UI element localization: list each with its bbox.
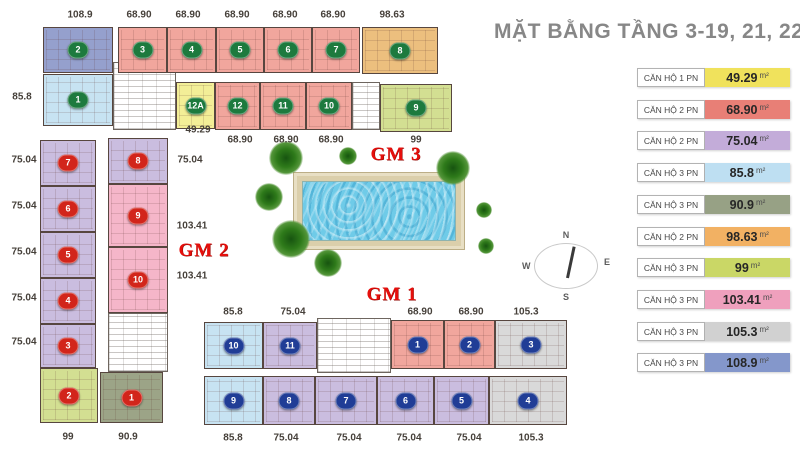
legend-area-value: 99m² xyxy=(705,258,790,277)
legend-area-number: 105.3 xyxy=(726,325,757,339)
legend-area-unit: m² xyxy=(759,325,768,334)
unit-4: 4 xyxy=(167,27,216,73)
legend-area-value: 90.9m² xyxy=(705,195,790,214)
legend-area-number: 90.9 xyxy=(730,198,754,212)
legend-area-number: 99 xyxy=(735,261,749,275)
area-label: 68.90 xyxy=(272,10,297,21)
area-label: 75.04 xyxy=(280,307,305,318)
area-label: 75.04 xyxy=(11,337,36,348)
legend-area-unit: m² xyxy=(763,293,772,302)
tree-icon xyxy=(476,202,492,218)
unit-number-badge: 9 xyxy=(128,207,149,224)
unit-8: 8 xyxy=(108,138,168,184)
unit-number-badge: 7 xyxy=(58,155,79,172)
unit-number-badge: 6 xyxy=(395,392,416,409)
unit-number-badge: 8 xyxy=(279,392,300,409)
unit-8: 8 xyxy=(263,376,315,425)
pool-water xyxy=(302,181,456,241)
unit-number-badge: 9 xyxy=(223,392,244,409)
area-label: 75.04 xyxy=(456,433,481,444)
legend-area-number: 49.29 xyxy=(726,71,757,85)
area-label: 108.9 xyxy=(67,10,92,21)
area-label: 68.90 xyxy=(175,10,200,21)
unit-number-badge: 4 xyxy=(58,293,79,310)
area-label: 68.90 xyxy=(227,135,252,146)
unit-11: 11 xyxy=(263,322,317,369)
legend-area-unit: m² xyxy=(759,134,768,143)
unit-number-badge: 8 xyxy=(128,153,149,170)
legend-row: CĂN HỘ 2 PN75.04m² xyxy=(637,131,790,150)
unit-number-badge: 12A xyxy=(185,97,206,114)
unit-7: 7 xyxy=(315,376,377,425)
legend-type-label: CĂN HỘ 2 PN xyxy=(637,100,705,119)
unit-number-badge: 7 xyxy=(326,42,347,59)
legend-row: CĂN HỘ 3 PN90.9m² xyxy=(637,195,790,214)
legend-row: CĂN HỘ 3 PN105.3m² xyxy=(637,322,790,341)
tree-icon xyxy=(436,151,470,185)
unit-6: 6 xyxy=(264,27,312,73)
legend-row: CĂN HỘ 3 PN103.41m² xyxy=(637,290,790,309)
unit-number-badge: 10 xyxy=(319,98,340,115)
area-label: 68.90 xyxy=(320,10,345,21)
unit-number-badge: 5 xyxy=(451,392,472,409)
unit-3: 3 xyxy=(40,324,96,368)
unit-number-badge: 3 xyxy=(132,42,153,59)
legend-type-label: CĂN HỘ 1 PN xyxy=(637,68,705,87)
area-label: 98.63 xyxy=(379,10,404,21)
area-label: 90.9 xyxy=(118,432,137,443)
legend-row: CĂN HỘ 3 PN85.8m² xyxy=(637,163,790,182)
area-label: 68.90 xyxy=(318,135,343,146)
unit-number-badge: 5 xyxy=(58,247,79,264)
unit-12: 12 xyxy=(215,82,260,130)
area-label: 75.04 xyxy=(11,201,36,212)
unit-10: 10 xyxy=(204,322,263,369)
legend-area-unit: m² xyxy=(759,103,768,112)
area-label: 103.41 xyxy=(177,271,208,282)
area-label: 105.3 xyxy=(513,307,538,318)
legend-area-unit: m² xyxy=(751,261,760,270)
legend-area-unit: m² xyxy=(759,71,768,80)
unit-9: 9 xyxy=(380,84,452,132)
unit-6: 6 xyxy=(377,376,434,425)
unit-number-badge: 6 xyxy=(278,42,299,59)
legend-area-value: 98.63m² xyxy=(705,227,790,246)
unit-number-badge: 1 xyxy=(68,92,89,109)
area-label: 68.90 xyxy=(273,135,298,146)
area-label: 68.90 xyxy=(224,10,249,21)
unit-number-badge: 4 xyxy=(181,42,202,59)
legend-type-label: CĂN HỘ 3 PN xyxy=(637,290,705,309)
unit-number-badge: 3 xyxy=(58,338,79,355)
legend-area-number: 68.90 xyxy=(726,103,757,117)
unit-number-badge: 11 xyxy=(280,337,301,354)
unit-5: 5 xyxy=(40,232,96,278)
area-label: 68.90 xyxy=(458,307,483,318)
area-label: 75.04 xyxy=(11,247,36,258)
legend-area-number: 98.63 xyxy=(726,230,757,244)
unit-number-badge: 3 xyxy=(521,336,542,353)
unit-8: 8 xyxy=(362,27,438,74)
unit-number-badge: 10 xyxy=(128,272,149,289)
legend-area-number: 103.41 xyxy=(723,293,761,307)
legend-type-label: CĂN HỘ 3 PN xyxy=(637,195,705,214)
unit-number-badge: 2 xyxy=(68,42,89,59)
page-title: MẶT BẰNG TẦNG 3-19, 21, 22 xyxy=(494,20,800,44)
unit-number-badge: 7 xyxy=(336,392,357,409)
legend-area-value: 75.04m² xyxy=(705,131,790,150)
area-label: 99 xyxy=(62,432,73,443)
area-label: 68.90 xyxy=(126,10,151,21)
tree-icon xyxy=(272,220,310,258)
unit-7: 7 xyxy=(312,27,360,73)
area-label: 103.41 xyxy=(177,221,208,232)
legend-row: CĂN HỘ 2 PN68.90m² xyxy=(637,100,790,119)
legend-row: CĂN HỘ 2 PN98.63m² xyxy=(637,227,790,246)
legend-row: CĂN HỘ 3 PN108.9m² xyxy=(637,353,790,372)
unit-2: 2 xyxy=(40,368,98,423)
stair-core xyxy=(108,313,168,372)
floorplan-canvas: MẶT BẰNG TẦNG 3-19, 21, 22 2345678112A12… xyxy=(0,0,800,456)
unit-number-badge: 6 xyxy=(58,201,79,218)
tree-icon xyxy=(339,147,357,165)
unit-3: 3 xyxy=(118,27,167,73)
unit-10: 10 xyxy=(108,247,168,313)
legend-area-unit: m² xyxy=(759,356,768,365)
tree-icon xyxy=(478,238,494,254)
legend-area-unit: m² xyxy=(756,198,765,207)
swimming-pool xyxy=(293,172,465,250)
unit-4: 4 xyxy=(489,376,567,425)
legend-area-number: 75.04 xyxy=(726,134,757,148)
compass-west: W xyxy=(522,261,531,271)
legend-type-label: CĂN HỘ 3 PN xyxy=(637,322,705,341)
unit-2: 2 xyxy=(444,320,495,369)
unit-number-badge: 2 xyxy=(459,336,480,353)
area-label: 105.3 xyxy=(518,433,543,444)
block-label: GM 2 xyxy=(179,240,230,262)
unit-5: 5 xyxy=(216,27,264,73)
unit-number-badge: 8 xyxy=(390,42,411,59)
unit-4: 4 xyxy=(40,278,96,324)
compass-east: E xyxy=(604,257,610,267)
compass-north: N xyxy=(563,230,570,240)
legend-area-number: 108.9 xyxy=(726,356,757,370)
legend-type-label: CĂN HỘ 3 PN xyxy=(637,163,705,182)
compass-south: S xyxy=(563,292,569,302)
unit-number-badge: 12 xyxy=(227,98,248,115)
unit-number-badge: 9 xyxy=(406,100,427,117)
unit-1: 1 xyxy=(100,372,163,423)
unit-number-badge: 2 xyxy=(59,387,80,404)
block-label: GM 1 xyxy=(367,284,418,306)
legend-area-value: 105.3m² xyxy=(705,322,790,341)
unit-12A: 12A xyxy=(176,82,215,129)
area-label: 85.8 xyxy=(12,92,31,103)
area-label: 75.04 xyxy=(11,293,36,304)
legend-type-label: CĂN HỘ 2 PN xyxy=(637,227,705,246)
legend-area-value: 68.90m² xyxy=(705,100,790,119)
legend-area-unit: m² xyxy=(759,230,768,239)
unit-3: 3 xyxy=(495,320,567,369)
legend-type-label: CĂN HỘ 2 PN xyxy=(637,131,705,150)
legend-area-value: 108.9m² xyxy=(705,353,790,372)
unit-6: 6 xyxy=(40,186,96,232)
area-label: 75.04 xyxy=(336,433,361,444)
unit-number-badge: 4 xyxy=(518,392,539,409)
block-label: GM 3 xyxy=(371,144,422,166)
compass-ring xyxy=(534,243,598,289)
legend-area-value: 85.8m² xyxy=(705,163,790,182)
unit-number-badge: 1 xyxy=(407,336,428,353)
legend-type-label: CĂN HỘ 3 PN xyxy=(637,353,705,372)
unit-1: 1 xyxy=(43,74,113,126)
compass-icon: NESW xyxy=(534,243,598,289)
unit-9: 9 xyxy=(108,184,168,247)
legend-type-label: CĂN HỘ 3 PN xyxy=(637,258,705,277)
unit-number-badge: 1 xyxy=(121,389,142,406)
tree-icon xyxy=(255,183,283,211)
area-label: 85.8 xyxy=(223,307,242,318)
unit-2: 2 xyxy=(43,27,113,73)
unit-11: 11 xyxy=(260,82,306,130)
area-label: 49.29 xyxy=(185,125,210,136)
area-label: 85.8 xyxy=(223,433,242,444)
stair-core xyxy=(352,82,380,130)
unit-number-badge: 5 xyxy=(230,42,251,59)
area-label: 75.04 xyxy=(273,433,298,444)
legend-row: CĂN HỘ 1 PN49.29m² xyxy=(637,68,790,87)
legend-area-number: 85.8 xyxy=(730,166,754,180)
legend-area-value: 103.41m² xyxy=(705,290,790,309)
unit-9: 9 xyxy=(204,376,263,425)
unit-number-badge: 10 xyxy=(223,337,244,354)
area-label: 68.90 xyxy=(407,307,432,318)
unit-1: 1 xyxy=(391,320,444,369)
unit-7: 7 xyxy=(40,140,96,186)
area-label: 75.04 xyxy=(396,433,421,444)
legend-area-unit: m² xyxy=(756,166,765,175)
unit-10: 10 xyxy=(306,82,352,130)
unit-number-badge: 11 xyxy=(273,98,294,115)
legend-row: CĂN HỘ 3 PN99m² xyxy=(637,258,790,277)
unit-5: 5 xyxy=(434,376,489,425)
tree-icon xyxy=(314,249,342,277)
area-label: 75.04 xyxy=(177,155,202,166)
legend-area-value: 49.29m² xyxy=(705,68,790,87)
stair-core xyxy=(317,318,391,373)
tree-icon xyxy=(269,141,303,175)
area-label: 75.04 xyxy=(11,155,36,166)
